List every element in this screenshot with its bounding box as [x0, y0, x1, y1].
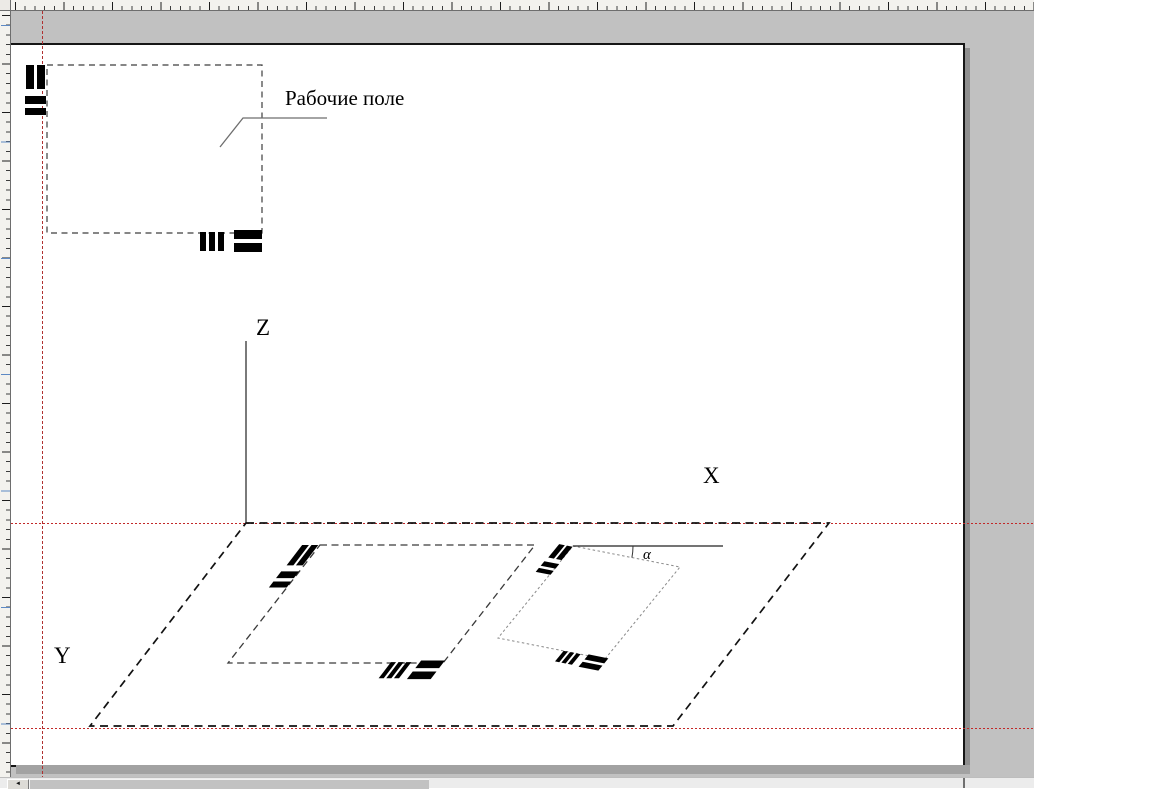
vertical-guideline[interactable] — [42, 11, 43, 777]
scroll-left-icon: ◄ — [15, 781, 21, 787]
right-empty-panel — [1034, 0, 1152, 787]
vertical-ruler[interactable] — [0, 11, 11, 777]
horizontal-scrollbar[interactable]: ◄ — [0, 777, 1034, 788]
horizontal-guideline-top[interactable] — [11, 523, 1034, 524]
scrollbar-thumb[interactable] — [29, 779, 429, 789]
horizontal-ruler[interactable] — [11, 0, 1034, 11]
page-shadow-right — [965, 48, 970, 770]
page-shadow-bottom — [16, 765, 970, 774]
horizontal-guideline-bottom[interactable] — [11, 728, 1034, 729]
ruler-corner[interactable] — [0, 0, 11, 11]
page-sheet — [11, 43, 965, 767]
scroll-left-button[interactable]: ◄ — [7, 779, 29, 789]
